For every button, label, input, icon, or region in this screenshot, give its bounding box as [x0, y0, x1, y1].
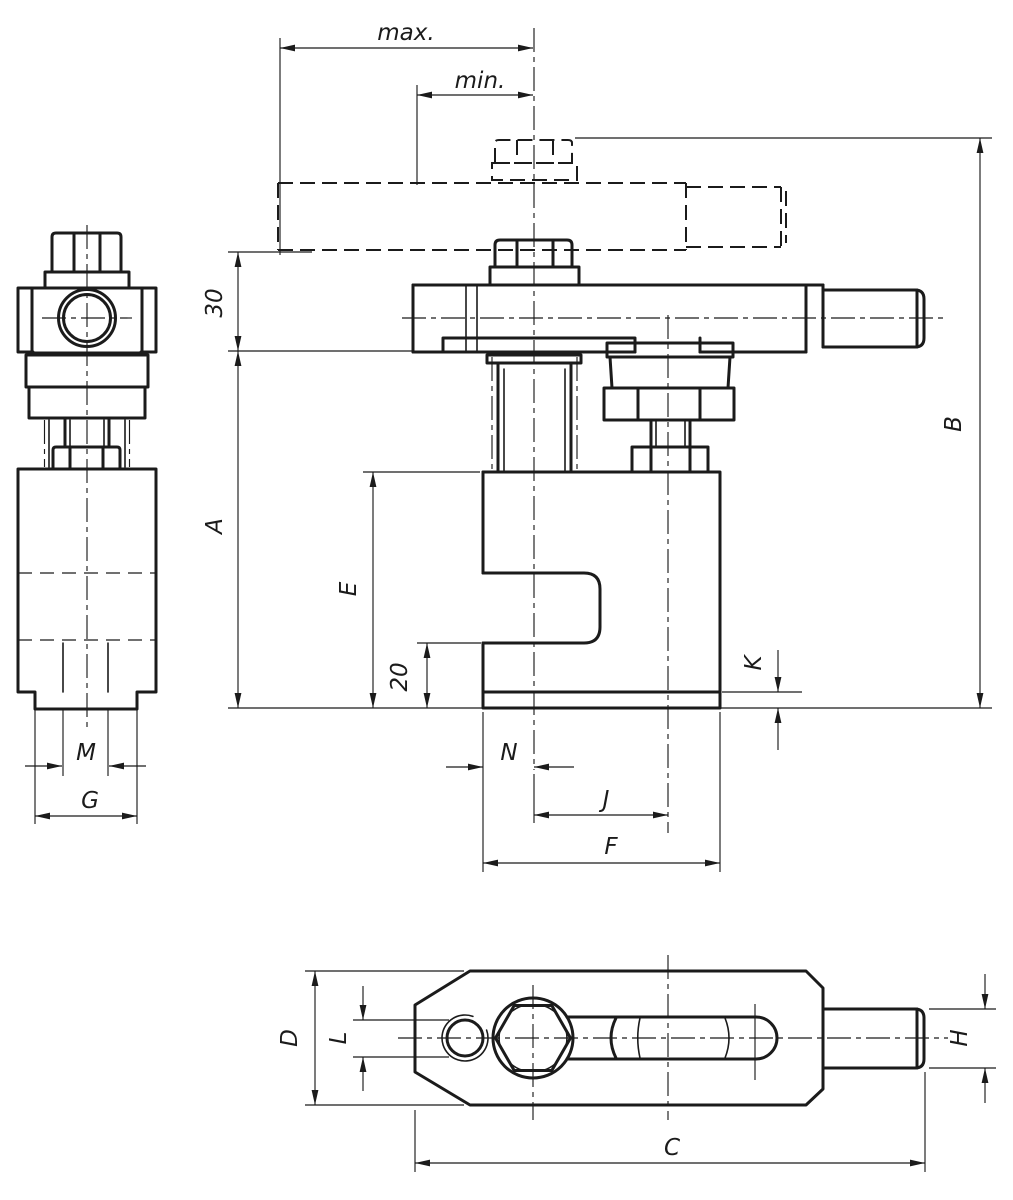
support-screw	[604, 343, 734, 472]
body-slot	[483, 573, 600, 643]
support-flange	[607, 343, 733, 357]
phantom-raised-arm	[278, 140, 786, 250]
support-lower-nut	[632, 447, 708, 472]
dim-label-min: min.	[455, 68, 506, 94]
front-body	[483, 472, 720, 708]
dim-label-l: L	[326, 1032, 352, 1045]
support-upper-nut	[604, 388, 734, 420]
dim-label-30: 30	[202, 288, 228, 317]
body-base-plate	[483, 692, 720, 708]
dim-label-max: max.	[377, 20, 434, 46]
dim-label-j: J	[599, 787, 610, 813]
dim-label-a: A	[202, 518, 228, 536]
dim-label-c: C	[664, 1135, 680, 1161]
dim-label-d: D	[277, 1029, 303, 1047]
clamp-drawing: M G	[0, 0, 1013, 1200]
dim-label-m: M	[76, 740, 96, 766]
dim-label-g: G	[81, 788, 99, 814]
dim-label-n: N	[500, 740, 517, 766]
dim-label-h: H	[947, 1029, 973, 1046]
bottom-view: D L H C	[277, 955, 996, 1172]
dim-label-f: F	[604, 834, 618, 860]
side-view: M G	[18, 225, 156, 824]
dim-label-b: B	[941, 416, 967, 432]
technical-drawing-page: M G	[0, 0, 1013, 1200]
dim-label-20: 20	[387, 662, 413, 691]
front-view: max. min. 30 A E 20 B K N J	[202, 20, 992, 872]
dim-label-e: E	[336, 581, 362, 596]
dim-label-k: K	[741, 654, 767, 671]
